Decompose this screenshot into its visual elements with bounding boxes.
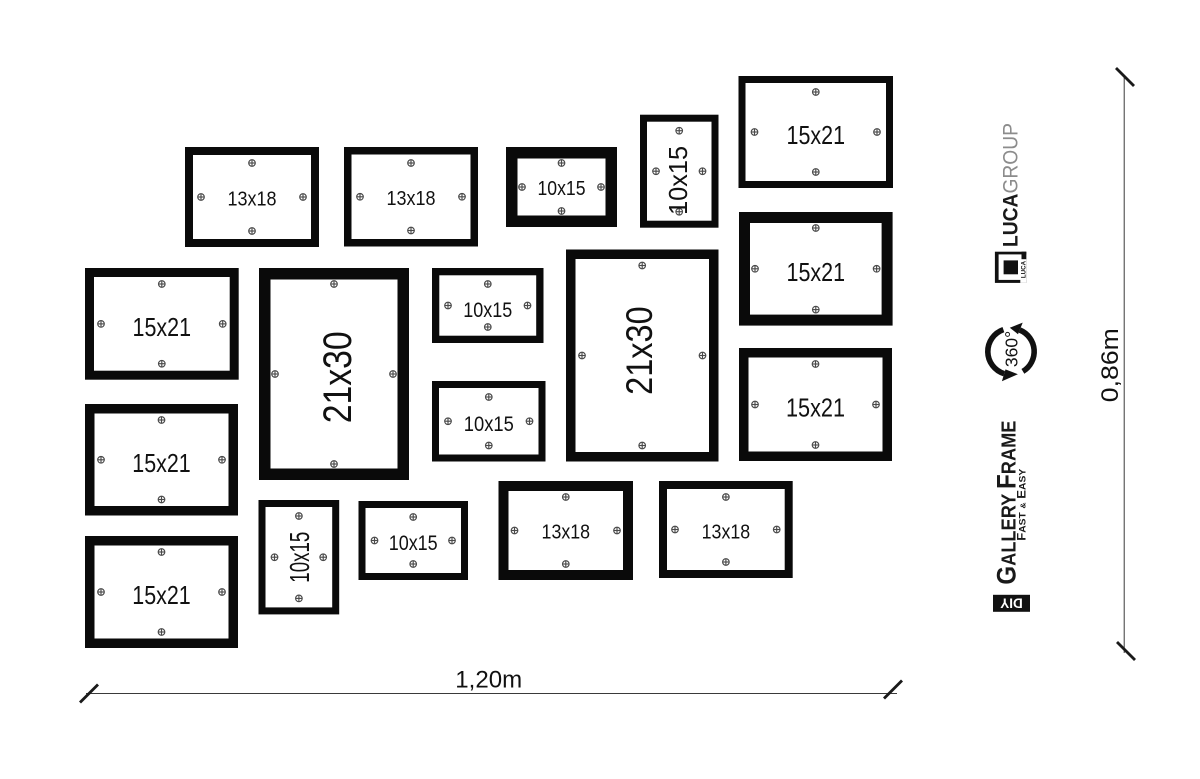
- svg-text:10x15: 10x15: [463, 298, 512, 322]
- svg-text:10x15: 10x15: [284, 532, 315, 583]
- svg-text:15x21: 15x21: [133, 312, 192, 342]
- svg-text:13x18: 13x18: [702, 521, 751, 544]
- svg-text:FAST & EASY: FAST & EASY: [1017, 469, 1029, 541]
- svg-text:13x18: 13x18: [228, 188, 277, 211]
- svg-text:LUCAGROUP: LUCAGROUP: [1000, 123, 1023, 247]
- svg-text:LUCA: LUCA: [1021, 260, 1028, 278]
- svg-text:13x18: 13x18: [542, 521, 591, 544]
- svg-text:15x21: 15x21: [787, 120, 846, 150]
- svg-text:1,20m: 1,20m: [455, 667, 522, 694]
- svg-text:10x15: 10x15: [464, 412, 514, 436]
- svg-text:13x18: 13x18: [387, 187, 436, 210]
- svg-text:360°: 360°: [1002, 331, 1022, 367]
- svg-text:DIY: DIY: [1000, 596, 1023, 611]
- svg-text:15x21: 15x21: [787, 257, 846, 287]
- svg-text:10x15: 10x15: [663, 146, 693, 215]
- svg-text:15x21: 15x21: [132, 448, 191, 478]
- svg-text:10x15: 10x15: [389, 531, 438, 555]
- svg-text:21x30: 21x30: [618, 306, 660, 395]
- svg-text:0,86m: 0,86m: [1097, 328, 1124, 402]
- svg-text:15x21: 15x21: [786, 393, 845, 423]
- svg-text:21x30: 21x30: [316, 331, 360, 423]
- svg-text:15x21: 15x21: [132, 580, 191, 610]
- svg-text:10x15: 10x15: [538, 177, 586, 200]
